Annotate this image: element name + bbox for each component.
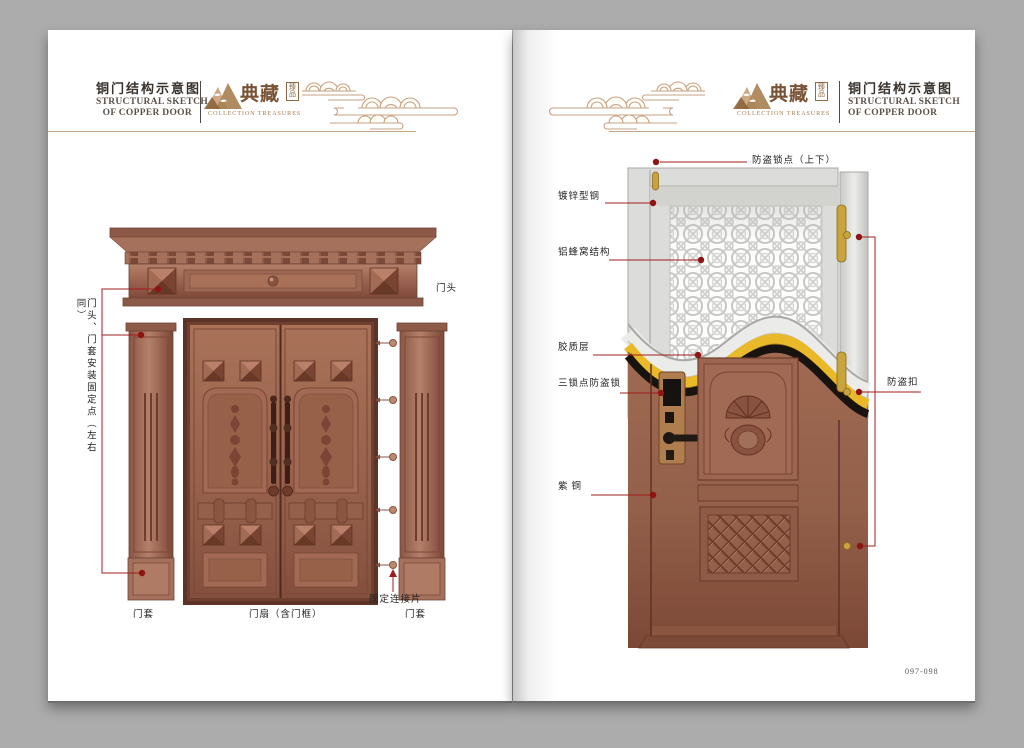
- lintel-illustration: [110, 228, 436, 306]
- diamond-panel: [700, 507, 798, 581]
- double-door-illustration: [183, 318, 378, 605]
- door-casing-left: [126, 323, 176, 600]
- label-galvanized-steel: 镀锌型钢: [558, 193, 600, 203]
- label-install-points: 门头、门套安装固定点（左右同）: [74, 298, 95, 466]
- lock-pin: [653, 172, 659, 190]
- lock-handle: [669, 435, 700, 442]
- left-page: 铜门结构示意图 STRUCTURAL SKETCH OF COPPER DOOR…: [48, 30, 512, 701]
- connector-symbols: [375, 340, 397, 569]
- label-copper: 紫铜: [558, 483, 585, 493]
- door-components-illustration: [48, 30, 512, 701]
- label-lock-points: 防盗锁点（上下）: [752, 157, 836, 167]
- door-cutaway-illustration: [513, 30, 975, 701]
- label-glue-layer: 胶质层: [558, 344, 590, 354]
- right-page: 典藏 臻 品 COLLECTION TREASURES 铜门结构示意图 STRU…: [513, 30, 975, 701]
- door-casing-right: [397, 323, 447, 600]
- label-security-buckle: 防盗扣: [887, 379, 919, 389]
- label-frame-right: 门套: [405, 611, 426, 621]
- catalog-spread: { "colors": { "accent_red": "#a01d1d", "…: [0, 0, 1024, 748]
- carved-panel: [698, 358, 798, 480]
- page-number: 097-098: [905, 667, 939, 676]
- label-connector: 固定连接片: [369, 596, 422, 606]
- label-leaf: 门扇（含门框）: [249, 611, 323, 621]
- label-lintel: 门头: [436, 285, 457, 295]
- label-triple-lock: 三锁点防盗锁: [558, 380, 621, 390]
- label-honeycomb: 铝蜂窝结构: [558, 249, 611, 259]
- label-frame-left: 门套: [133, 611, 154, 621]
